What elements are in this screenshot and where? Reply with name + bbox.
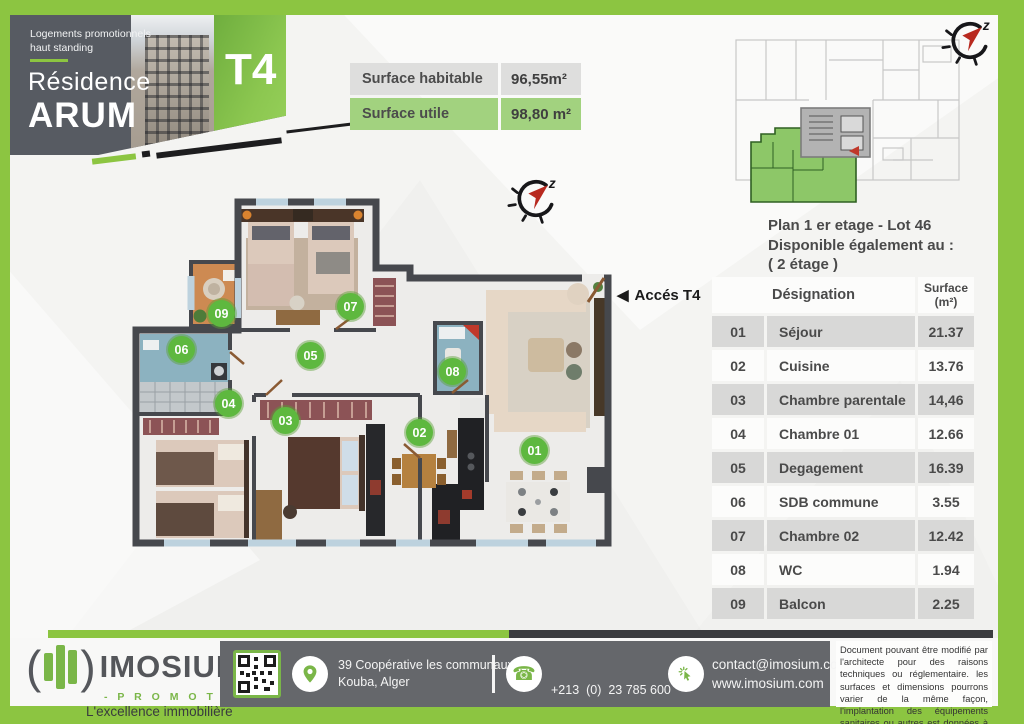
phone-icon: ☎ xyxy=(506,656,542,692)
residence-label: Résidence xyxy=(28,68,151,97)
room-row-num: 09 xyxy=(712,588,764,619)
cursor-click-icon xyxy=(668,656,704,692)
footer-bar-green xyxy=(48,630,509,638)
footer-separator xyxy=(492,655,495,693)
address-line1: 39 Coopérative les communaux xyxy=(338,657,514,674)
contact-info: contact@imosium.com www.imosium.com xyxy=(712,655,849,693)
surface-table: Surface habitable 96,55m² Surface utile … xyxy=(350,63,581,130)
tagline: Logements promotionnels haut standing xyxy=(30,27,151,55)
room-row-num: 08 xyxy=(712,554,764,585)
floor-plan-graphic xyxy=(130,190,630,555)
surface-habitable-label: Surface habitable xyxy=(350,63,498,95)
room-row-surface: 3.55 xyxy=(918,486,974,517)
room-marker-01: 01 xyxy=(521,437,548,464)
qr-code xyxy=(233,650,281,698)
access-arrow-icon: ◀ xyxy=(617,286,629,304)
email: contact@imosium.com xyxy=(712,655,849,674)
phone-numbers: +213 (0) 23 785 600 +213 (0) 560 066 466… xyxy=(551,648,671,724)
room-row-name: Degagement xyxy=(767,452,915,483)
accent-green-line xyxy=(92,153,136,164)
room-marker-02: 02 xyxy=(406,419,433,446)
room-row-name: SDB commune xyxy=(767,486,915,517)
room-row-num: 07 xyxy=(712,520,764,551)
tagline-underline xyxy=(30,59,68,62)
logo-paren-close: ) xyxy=(80,644,95,690)
room-marker-05: 05 xyxy=(297,342,324,369)
room-row-name: Chambre parentale xyxy=(767,384,915,415)
unit-type-badge: T4 xyxy=(225,45,276,95)
residence-name: ARUM xyxy=(28,96,137,136)
footer-contact-band: 39 Coopérative les communaux Kouba, Alge… xyxy=(220,641,830,707)
room-row-name: Séjour xyxy=(767,316,915,347)
tagline-line2: haut standing xyxy=(30,41,151,55)
room-row-name: Chambre 02 xyxy=(767,520,915,551)
logo-bars-icon xyxy=(44,645,77,689)
address-line2: Kouba, Alger xyxy=(338,674,514,691)
site-overview-plan xyxy=(733,30,965,205)
plan-info-line2: Disponible également au : xyxy=(768,236,954,256)
svg-text:z: z xyxy=(548,175,556,191)
logo-paren-open: ( xyxy=(26,644,41,690)
room-row-num: 03 xyxy=(712,384,764,415)
room-row-num: 02 xyxy=(712,350,764,381)
room-row-num: 01 xyxy=(712,316,764,347)
room-row-name: Balcon xyxy=(767,588,915,619)
footer-bar-dark xyxy=(509,630,993,638)
disclaimer: Document pouvant être modifié par l'arch… xyxy=(836,641,992,707)
frame-top xyxy=(0,0,1024,15)
room-row-num: 06 xyxy=(712,486,764,517)
room-row-name: WC xyxy=(767,554,915,585)
surface-utile-value: 98,80 m² xyxy=(501,98,581,130)
accent-dot xyxy=(142,151,151,158)
website: www.imosium.com xyxy=(712,674,849,693)
room-row-surface: 1.94 xyxy=(918,554,974,585)
svg-text:z: z xyxy=(982,17,990,33)
room-row-surface: 14,46 xyxy=(918,384,974,415)
room-row-name: Chambre 01 xyxy=(767,418,915,449)
room-marker-04: 04 xyxy=(215,390,242,417)
brochure-page: Logements promotionnels haut standing Ré… xyxy=(0,0,1024,724)
surface-utile-label: Surface utile xyxy=(350,98,498,130)
address: 39 Coopérative les communaux Kouba, Alge… xyxy=(338,657,514,691)
access-label: ◀ Accés T4 xyxy=(617,286,700,304)
room-row-name: Cuisine xyxy=(767,350,915,381)
room-row-num: 05 xyxy=(712,452,764,483)
room-row-surface: 2.25 xyxy=(918,588,974,619)
frame-left xyxy=(0,0,10,724)
plan-info-line1: Plan 1 er etage - Lot 46 xyxy=(768,216,954,236)
floor-plan: 01 02 03 04 05 06 07 08 09 xyxy=(130,190,630,555)
frame-right xyxy=(998,0,1024,724)
qr-code-pattern xyxy=(238,655,276,693)
tagline-line1: Logements promotionnels xyxy=(30,27,151,41)
room-marker-09: 09 xyxy=(208,300,235,327)
room-row-surface: 13.76 xyxy=(918,350,974,381)
plan-info: Plan 1 er etage - Lot 46 Disponible égal… xyxy=(768,216,954,275)
room-marker-06: 06 xyxy=(168,336,195,363)
room-row-num: 04 xyxy=(712,418,764,449)
room-marker-03: 03 xyxy=(272,407,299,434)
room-row-surface: 12.42 xyxy=(918,520,974,551)
compass-icon-top-right: z xyxy=(938,16,996,68)
phone-line1: +213 (0) 23 785 600 xyxy=(551,682,671,699)
access-text: Accés T4 xyxy=(635,287,701,304)
accent-black-line xyxy=(156,137,282,158)
room-marker-08: 08 xyxy=(439,358,466,385)
plan-info-line3: ( 2 étage ) xyxy=(768,255,954,275)
room-row-surface: 21.37 xyxy=(918,316,974,347)
room-marker-07: 07 xyxy=(337,293,364,320)
rooms-table: Désignation Surface (m²) 01 Séjour 21.37… xyxy=(712,277,974,619)
surface-habitable-value: 96,55m² xyxy=(501,63,581,95)
rooms-table-header-designation: Désignation xyxy=(712,277,915,313)
room-row-surface: 12.66 xyxy=(918,418,974,449)
header-block: Logements promotionnels haut standing Ré… xyxy=(10,15,286,155)
rooms-table-header-surface: Surface (m²) xyxy=(918,277,974,313)
room-row-surface: 16.39 xyxy=(918,452,974,483)
location-pin-icon xyxy=(292,656,328,692)
